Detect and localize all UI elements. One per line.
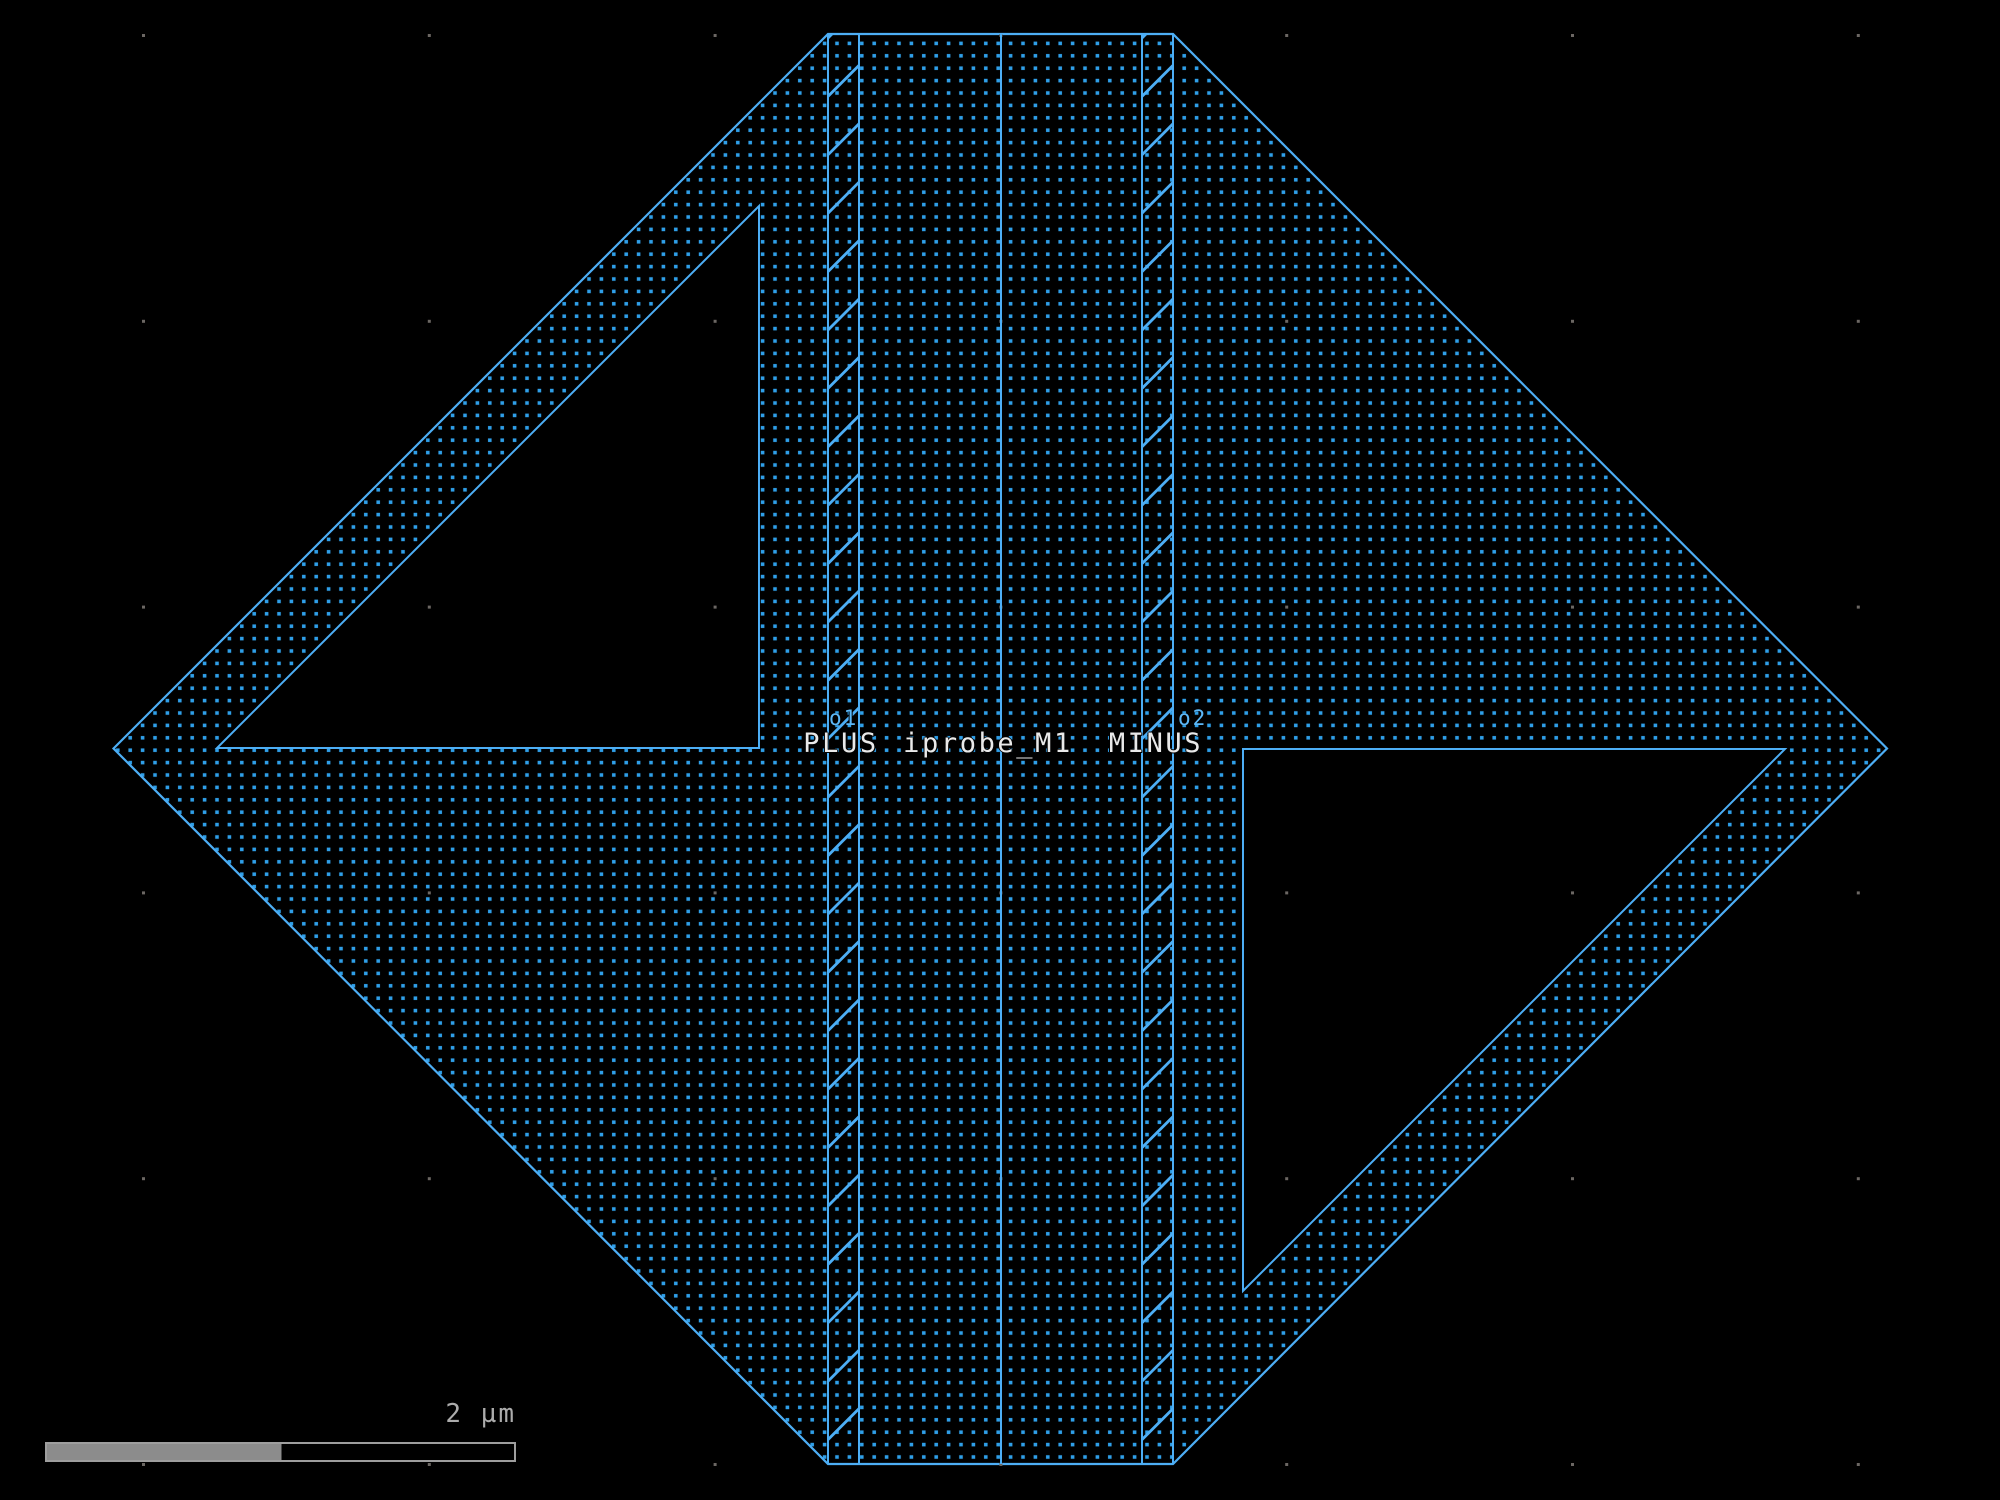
scale-bar-filled-half [47,1444,282,1460]
port-marker-o2[interactable]: o2 [1178,706,1207,730]
layout-editor-window: { "canvas": { "width": 2000, "height": 1… [0,0,2000,1500]
cutout-triangle-1[interactable] [217,206,759,748]
pin-label-plus[interactable]: PLUS [803,730,878,757]
net-name-label[interactable]: iprobe_M1 [903,730,1073,757]
pin-label-minus[interactable]: MINUS [1109,730,1203,757]
cutout-triangle-2[interactable] [1243,749,1785,1291]
scale-bar [46,1443,515,1461]
port-marker-o1[interactable]: o1 [829,706,858,730]
scalebar-value-label: 2 µm [445,1400,516,1428]
layout-canvas-viewport[interactable]: PLUS iprobe_M1 MINUS o1 o2 2 µm [0,0,2000,1500]
